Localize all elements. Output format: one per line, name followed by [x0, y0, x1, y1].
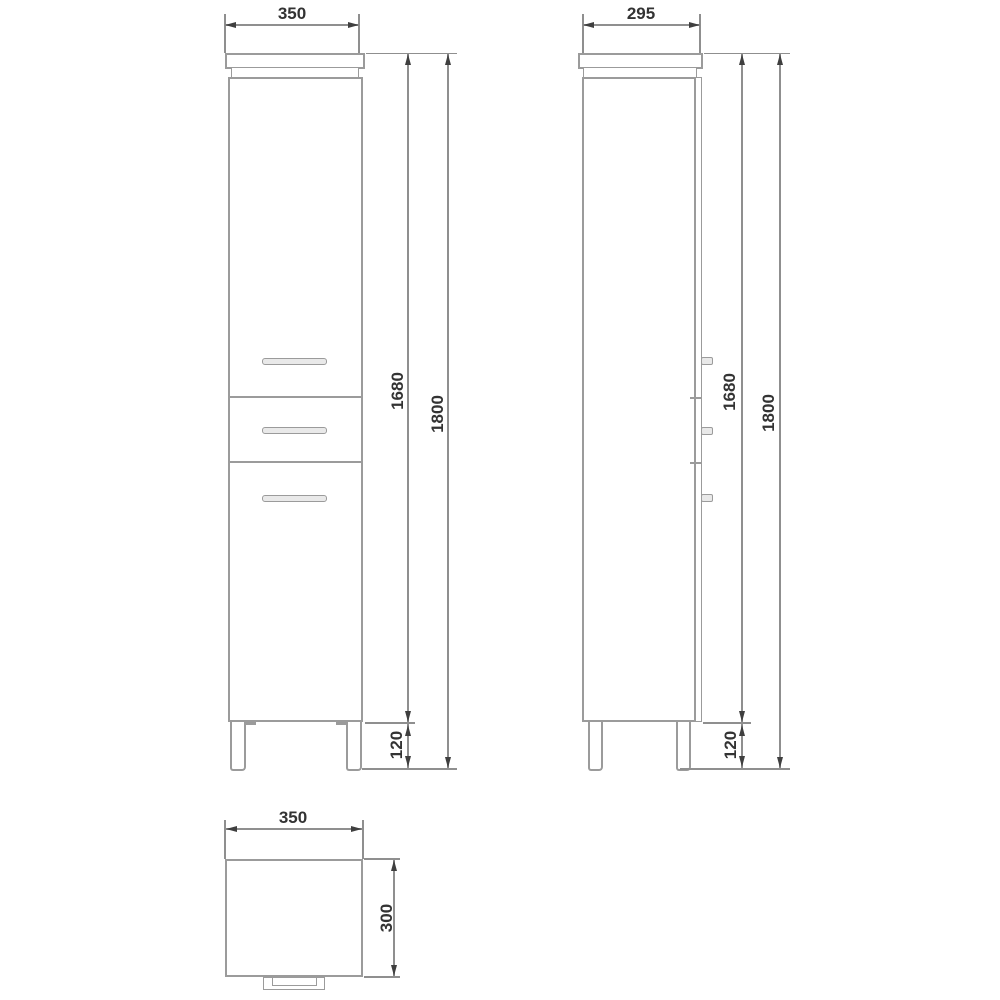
- front-left-leg: [230, 722, 246, 771]
- arrowhead-up-icon: [405, 54, 411, 65]
- plan-depth-label: 300: [379, 888, 395, 948]
- dimension-line: [447, 53, 449, 769]
- front-right-leg: [346, 722, 362, 771]
- extension-line: [366, 53, 457, 55]
- side-depth-label: 295: [606, 6, 676, 22]
- extension-line: [699, 14, 701, 53]
- front-door-drawer-divider: [228, 396, 363, 398]
- side-back-leg: [588, 722, 603, 771]
- side-door-edge: [695, 77, 702, 722]
- leg-mount-tab: [336, 722, 346, 725]
- front-body-outline: [228, 77, 363, 722]
- dimension-line: [779, 53, 781, 769]
- side-handle-profile: [701, 357, 713, 365]
- arrowhead-left-icon: [226, 826, 237, 832]
- dimension-line: [741, 53, 743, 723]
- extension-line: [358, 14, 360, 53]
- arrowhead-right-icon: [351, 826, 362, 832]
- side-leg-height-label: 120: [723, 715, 739, 775]
- front-width-label: 350: [257, 6, 327, 22]
- arrowhead-up-icon: [391, 860, 397, 871]
- plan-body-outline: [225, 859, 363, 977]
- arrowhead-right-icon: [348, 22, 359, 28]
- front-drawer-door-divider: [228, 461, 363, 463]
- arrowhead-down-icon: [445, 757, 451, 768]
- plan-handle-inner: [272, 977, 317, 986]
- arrowhead-down-icon: [391, 965, 397, 976]
- side-handle-profile: [701, 494, 713, 502]
- arrowhead-down-icon: [739, 711, 745, 722]
- front-total-height-label: 1800: [430, 384, 446, 444]
- arrowhead-down-icon: [405, 711, 411, 722]
- arrowhead-left-icon: [583, 22, 594, 28]
- side-shelf-mark: [690, 462, 701, 464]
- cabinet-technical-drawing: 350 1680 1800 120: [0, 0, 1000, 1000]
- arrowhead-left-icon: [225, 22, 236, 28]
- arrowhead-up-icon: [445, 54, 451, 65]
- dimension-line: [225, 24, 360, 26]
- front-cabinet-height-label: 1680: [390, 361, 406, 421]
- extension-line: [364, 976, 400, 978]
- extension-line: [224, 14, 226, 53]
- front-leg-height-label: 120: [389, 715, 405, 775]
- arrowhead-down-icon: [777, 757, 783, 768]
- arrowhead-up-icon: [739, 54, 745, 65]
- dimension-line: [226, 828, 362, 830]
- leg-mount-tab: [246, 722, 256, 725]
- extension-line: [582, 14, 584, 53]
- front-bottom-door-handle: [262, 495, 327, 502]
- plan-width-label: 350: [258, 810, 328, 826]
- side-shelf-mark: [690, 397, 701, 399]
- extension-line: [362, 820, 364, 859]
- side-handle-profile: [701, 427, 713, 435]
- arrowhead-right-icon: [689, 22, 700, 28]
- side-body-outline: [582, 77, 696, 722]
- front-top-door-handle: [262, 358, 327, 365]
- dimension-line: [407, 53, 409, 723]
- dimension-line: [583, 24, 700, 26]
- side-front-leg: [676, 722, 691, 771]
- front-drawer-handle: [262, 427, 327, 434]
- arrowhead-up-icon: [777, 54, 783, 65]
- extension-line: [362, 768, 457, 770]
- side-cabinet-height-label: 1680: [722, 362, 738, 422]
- side-total-height-label: 1800: [761, 383, 777, 443]
